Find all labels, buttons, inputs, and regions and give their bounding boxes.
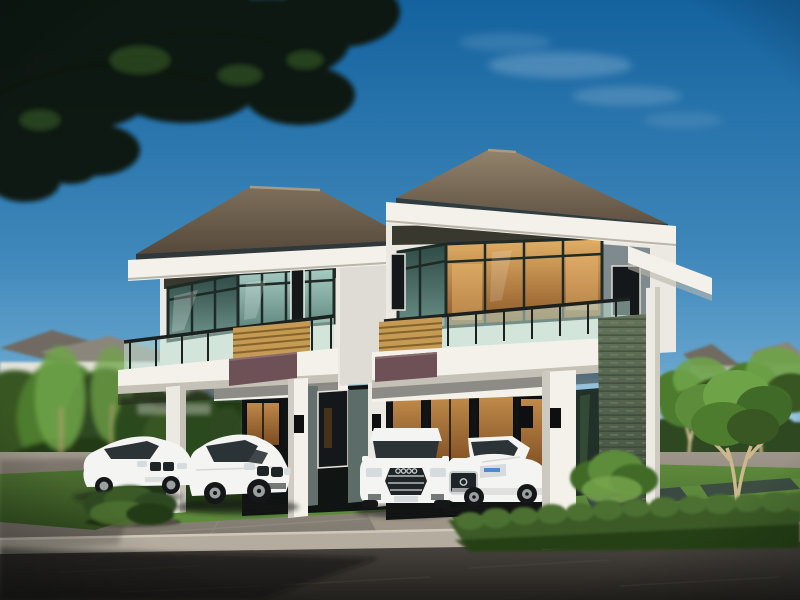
- vignette: [0, 0, 800, 600]
- rendering-canvas: [0, 0, 800, 600]
- scene-svg: [0, 0, 800, 600]
